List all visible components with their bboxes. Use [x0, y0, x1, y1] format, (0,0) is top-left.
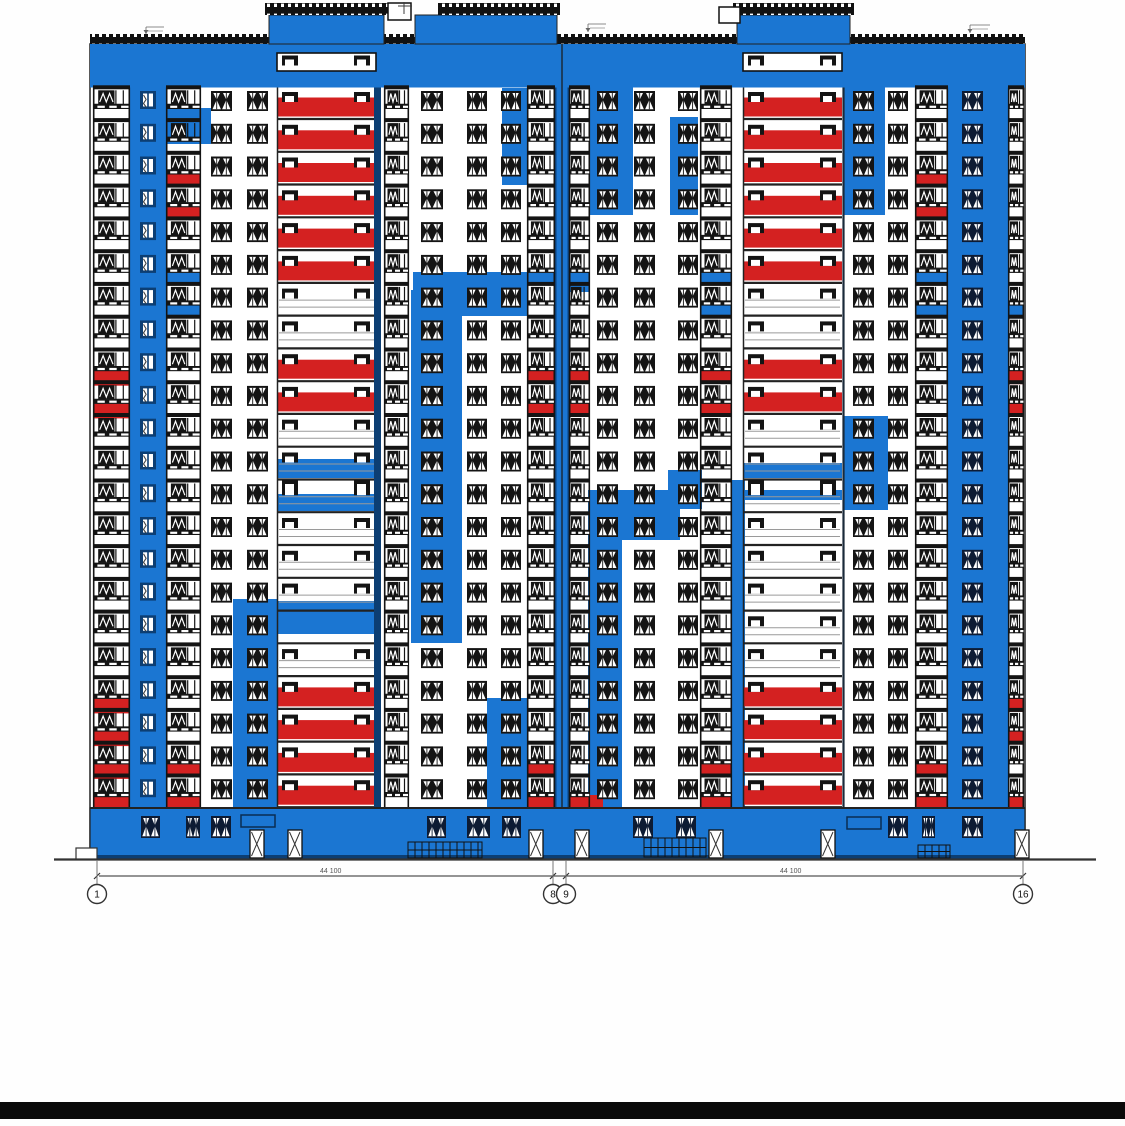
svg-text:16: 16: [1017, 890, 1029, 901]
svg-text:1: 1: [94, 890, 100, 901]
svg-text:8: 8: [550, 890, 556, 901]
svg-text:44 100: 44 100: [780, 868, 802, 875]
svg-text:9: 9: [563, 890, 569, 901]
svg-text:44 100: 44 100: [320, 868, 342, 875]
